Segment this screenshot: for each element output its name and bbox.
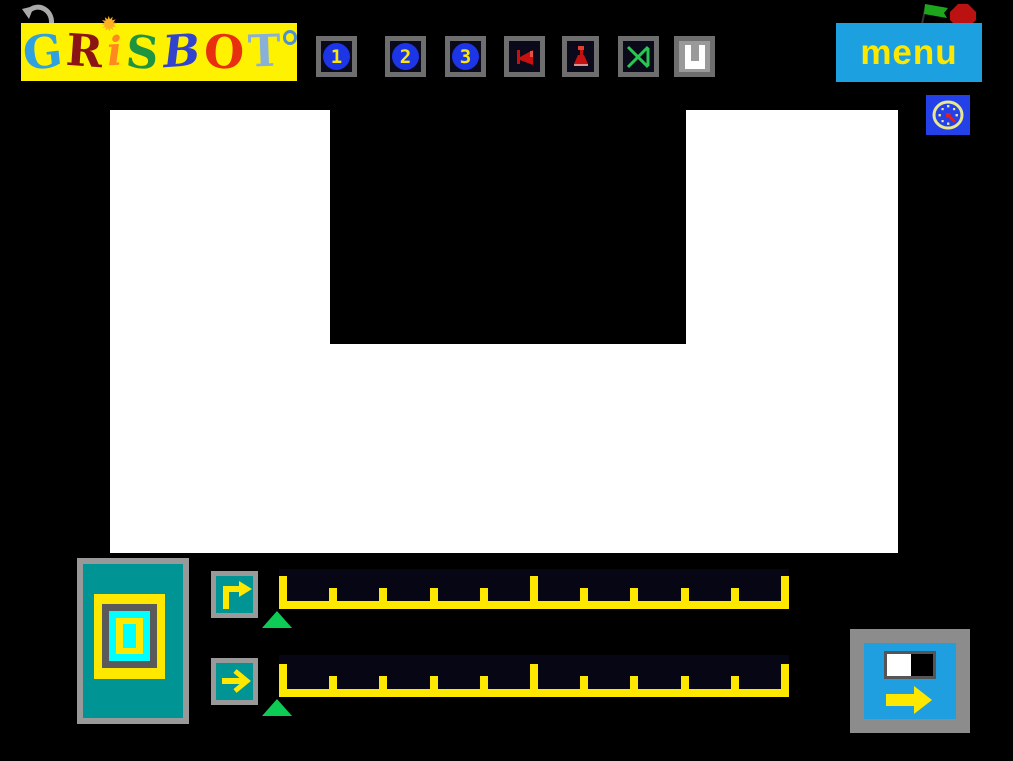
menu-button-label: menu <box>860 33 957 73</box>
timeline-tick <box>731 676 739 689</box>
move-forward-button[interactable] <box>211 658 258 705</box>
program-1-button[interactable]: 1 <box>316 36 357 77</box>
logo-ring-decoration <box>283 30 297 45</box>
timeline-tick <box>630 588 638 601</box>
red-lamp-icon <box>567 41 594 72</box>
timeline-tick <box>379 676 387 689</box>
clock-button[interactable] <box>926 95 970 135</box>
digit-1-icon: 1 <box>323 43 350 70</box>
logo-letter: S <box>124 28 160 76</box>
logo-letter: G <box>21 27 65 77</box>
cross-tool-button[interactable] <box>618 36 659 77</box>
green-flag-icon[interactable] <box>919 2 949 24</box>
timeline-tick <box>630 676 638 689</box>
step-cells-icon <box>884 651 936 679</box>
timeline-tick <box>279 664 287 689</box>
program-3-button[interactable]: 3 <box>445 36 486 77</box>
timeline-tick <box>430 676 438 689</box>
magnet-tool-button[interactable] <box>674 36 715 77</box>
flag-tool-button[interactable] <box>504 36 545 77</box>
timeline-baseline <box>279 689 789 697</box>
timeline-tick <box>580 588 588 601</box>
timeline-tick <box>279 576 287 601</box>
timeline-tick <box>781 664 789 689</box>
go-button-face <box>864 643 956 719</box>
move-forward-timeline-pointer[interactable] <box>262 699 292 716</box>
lamp-tool-button[interactable] <box>562 36 599 77</box>
timeline-tick <box>681 588 689 601</box>
clock-icon <box>929 97 967 133</box>
timeline-tick <box>480 676 488 689</box>
timeline-tick <box>430 588 438 601</box>
stage-canvas[interactable] <box>110 110 898 553</box>
logo-letter: B <box>161 29 201 75</box>
logo-letter: O <box>203 28 245 76</box>
timeline-tick <box>329 588 337 601</box>
robot-core <box>123 624 136 648</box>
go-step-button[interactable] <box>850 629 970 733</box>
logo-letter: i✹ <box>106 32 123 73</box>
logo-letter: R <box>65 29 105 75</box>
white-u-magnet-icon <box>685 45 705 69</box>
timeline-tick <box>379 588 387 601</box>
green-bowtie-cross-icon <box>623 41 654 72</box>
grisbot-logo: GRi✹SBOT <box>21 23 297 81</box>
program-2-button[interactable]: 2 <box>385 36 426 77</box>
grisbot-app: { "header": { "logo": { "bg_color": "#ff… <box>0 0 1013 761</box>
timeline-tick <box>530 664 538 689</box>
timeline-tick <box>329 676 337 689</box>
turn-right-arrow-icon <box>216 576 253 613</box>
turn-right-timeline[interactable] <box>279 569 789 609</box>
turn-right-button[interactable] <box>211 571 258 618</box>
move-forward-timeline[interactable] <box>279 655 789 697</box>
go-arrow-icon <box>886 685 934 715</box>
digit-2-icon: 2 <box>392 43 419 70</box>
robot-body-ring <box>94 594 165 679</box>
timeline-tick <box>530 576 538 601</box>
timeline-tick <box>580 676 588 689</box>
timeline-tick <box>480 588 488 601</box>
timeline-baseline <box>279 601 789 609</box>
digit-3-icon: 3 <box>452 43 479 70</box>
timeline-tick <box>731 588 739 601</box>
timeline-tick <box>681 676 689 689</box>
sun-decoration-icon: ✹ <box>101 16 117 35</box>
forward-arrow-icon <box>216 663 253 700</box>
turn-right-timeline-pointer[interactable] <box>262 611 292 628</box>
menu-button[interactable]: menu <box>836 23 982 82</box>
timeline-tick <box>781 576 789 601</box>
robot-sprite[interactable] <box>77 558 189 724</box>
logo-letter: T <box>247 29 281 74</box>
red-horn-flag-icon <box>509 41 540 72</box>
stage-obstacle-notch <box>330 110 686 344</box>
